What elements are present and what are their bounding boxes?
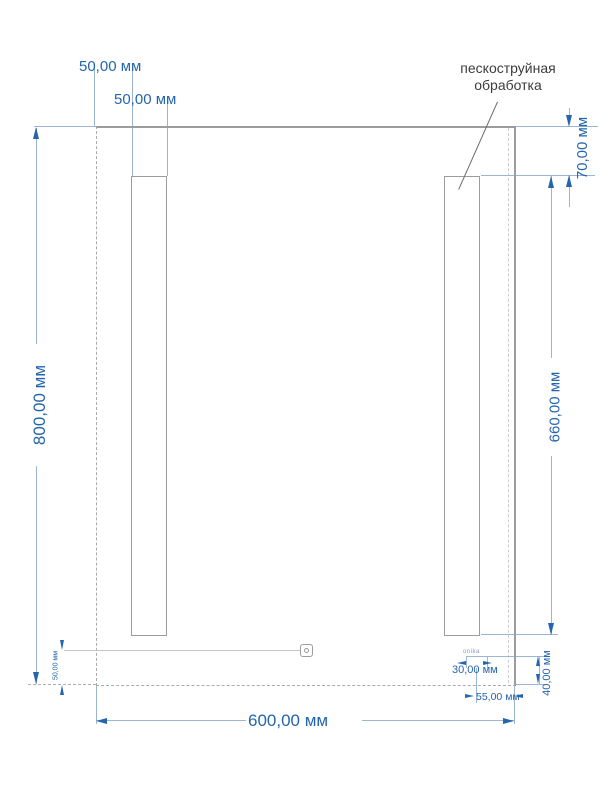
dimension-line (96, 720, 246, 721)
logo-mark: onika (463, 649, 480, 655)
dim-mirror-width: 600,00 мм (248, 711, 328, 731)
arrow-up-icon (566, 175, 572, 187)
arrow-left-icon (457, 661, 466, 665)
touch-switch-icon (304, 648, 309, 653)
extension-line (34, 126, 96, 127)
arrow-down-icon (60, 640, 64, 650)
extension-line (94, 66, 95, 126)
switch-leader-line (64, 650, 300, 651)
touch-switch (300, 644, 313, 657)
sandblast-label-line1: пескоструйная (460, 60, 555, 76)
arrow-down-icon (536, 674, 540, 684)
sandblast-label: пескоструйная обработка (430, 60, 586, 94)
dim-strip-offset-left: 50,00 мм (79, 58, 141, 75)
dim-logo-height: 40,00 мм (541, 645, 553, 701)
arrow-right-icon (483, 661, 492, 665)
dimension-line (551, 176, 552, 358)
dimension-line (36, 466, 37, 684)
right-light-strip (444, 176, 480, 636)
arrow-up-icon (33, 127, 39, 139)
arrow-down-icon (33, 672, 39, 684)
arrow-up-icon (536, 656, 540, 666)
mirror-technical-drawing: 50,00 мм 50,00 мм 800,00 мм 600,00 мм 70… (0, 0, 616, 800)
sandblast-label-line2: обработка (474, 77, 542, 93)
dim-mirror-height: 800,00 мм (31, 350, 49, 460)
dim-strip-width: 50,00 мм (114, 91, 176, 108)
dim-strip-height: 660,00 мм (547, 360, 563, 455)
arrow-down-icon (566, 115, 572, 127)
arrow-left-icon (96, 718, 107, 724)
dimension-line (36, 128, 37, 344)
dim-strip-offset-top: 70,00 мм (574, 107, 590, 189)
arrow-up-icon (60, 685, 64, 695)
left-light-strip (131, 176, 167, 636)
dim-logo-width: 30,00 мм (452, 664, 498, 676)
arrow-down-icon (548, 623, 554, 635)
dim-switch-offset-bottom: 50,00 мм (52, 649, 61, 683)
arrow-right-icon (465, 694, 474, 698)
arrow-up-icon (548, 176, 554, 188)
dimension-line (362, 720, 514, 721)
arrow-right-icon (503, 718, 514, 724)
dimension-line (551, 456, 552, 635)
arrow-left-icon (514, 694, 523, 698)
